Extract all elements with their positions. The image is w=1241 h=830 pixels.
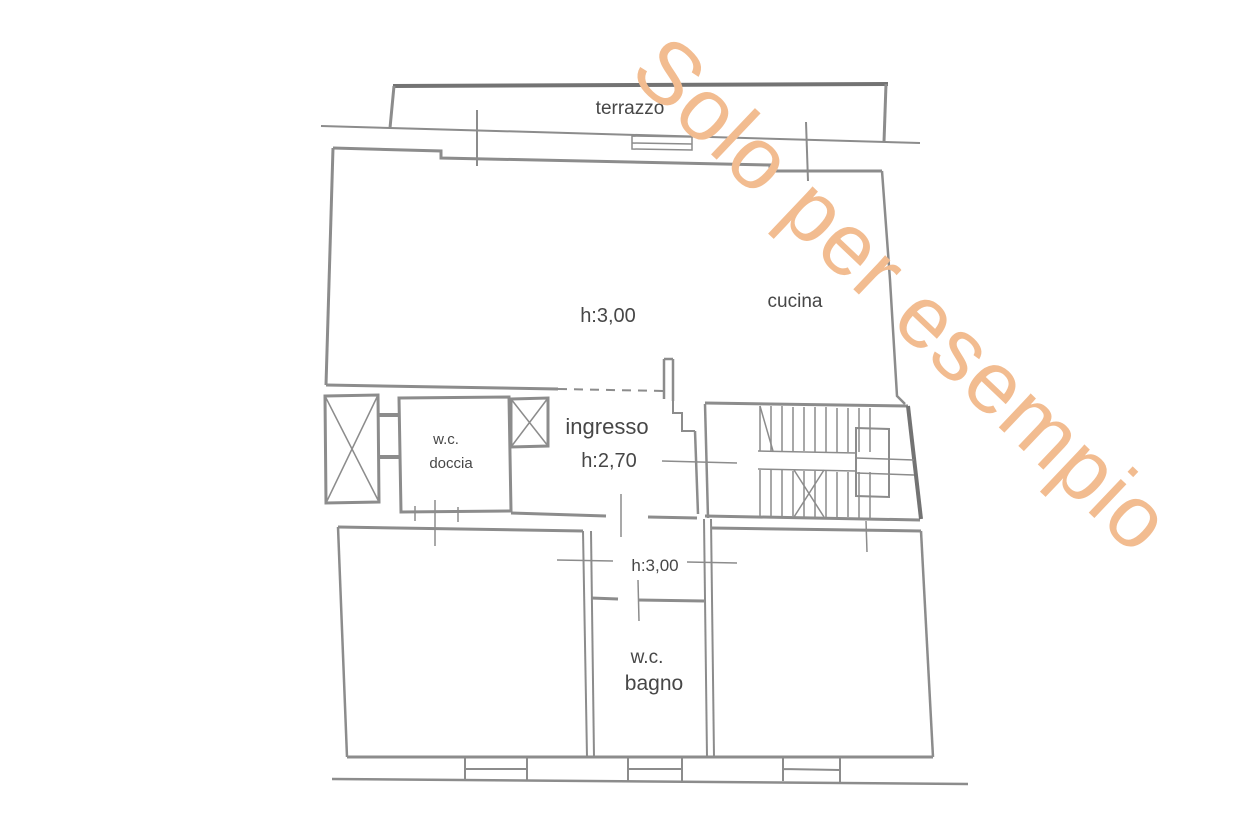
stairwell [705,403,921,520]
label-wc-bagno-1: w.c. [630,647,664,668]
label-height-disimpegno: h:3,00 [631,556,678,575]
room-bedroom-left [338,527,592,757]
floorplan-page: terrazzo h:3,00 cucina [0,0,1241,830]
window-bagno [628,757,682,781]
room-wc-bagno: w.c. bagno [591,580,707,757]
label-wc-doccia-1: w.c. [432,431,459,448]
label-cucina: cucina [768,291,823,312]
baseline [332,779,968,784]
label-height-ingresso: h:2,70 [581,450,637,472]
label-ingresso: ingresso [565,414,648,439]
label-wc-bagno-2: bagno [625,672,683,695]
bottom-facade [332,757,968,784]
label-height-soggiorno: h:3,00 [580,305,636,327]
label-wc-doccia-2: doccia [429,455,473,472]
window-right [783,757,840,782]
room-wc-doccia: w.c. doccia [399,397,548,546]
room-disimpegno: h:3,00 [557,519,737,757]
window-left [465,757,527,781]
room-bedroom-right [707,521,933,757]
shaft-box [325,395,399,503]
room-ingresso: ingresso h:2,70 [511,359,737,537]
